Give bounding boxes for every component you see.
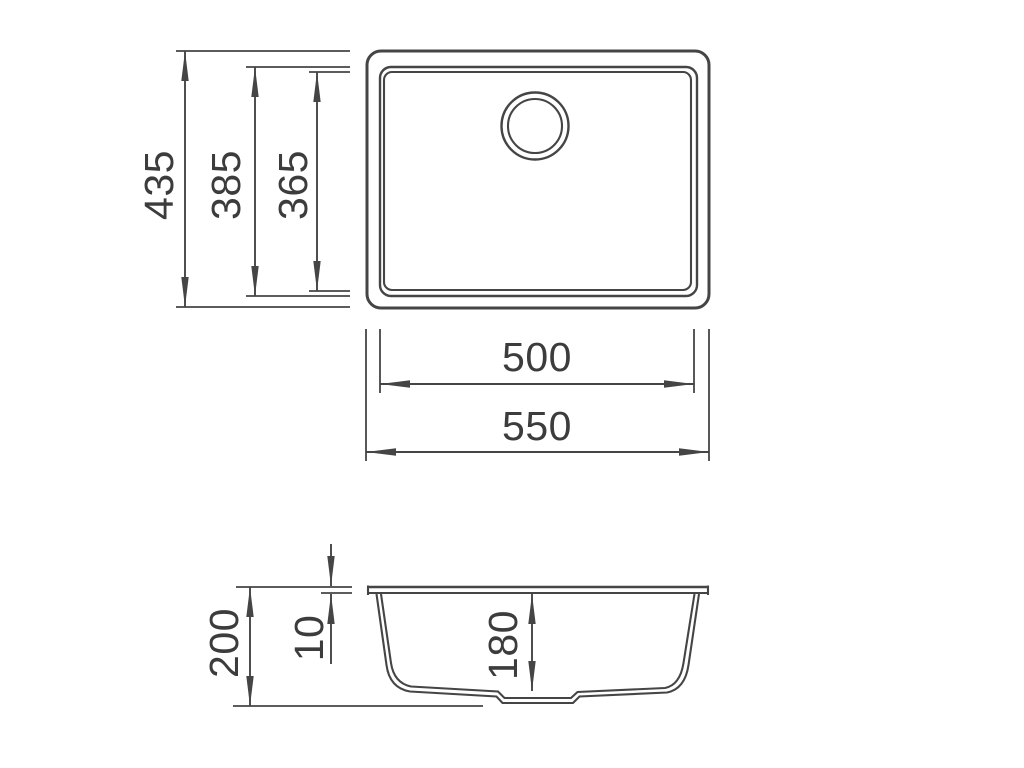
dim-bowl-height: 180: [480, 594, 532, 691]
technical-drawing-page: 435 385 365 500 550: [0, 0, 1024, 768]
drain-inner-circle: [508, 99, 562, 153]
sink-rim-outline: [367, 51, 709, 308]
drain-outer-circle: [502, 93, 569, 160]
sink-section-view: [368, 586, 708, 704]
dim-label-bowl-height: 180: [480, 610, 526, 680]
sink-top-view: [367, 51, 709, 308]
bowl-bottom-edge-outline: [384, 72, 691, 290]
bowl-inner-surface-profile: [381, 594, 695, 698]
dim-label-rim-inner-depth: 385: [203, 150, 249, 220]
dim-label-bowl-depth: 365: [270, 150, 316, 220]
dim-label-overall-height: 200: [201, 608, 247, 678]
dim-label-overall-depth: 435: [136, 150, 182, 220]
dim-label-rim-height: 10: [286, 615, 332, 662]
dim-label-overall-width: 550: [502, 403, 572, 449]
sink-dimension-drawing: 435 385 365 500 550: [0, 0, 1024, 768]
dim-bowl-width: 500: [380, 329, 694, 393]
dim-label-bowl-width: 500: [502, 334, 572, 380]
bowl-top-edge-outline: [380, 67, 697, 296]
dim-bowl-depth: 365: [270, 72, 350, 291]
dim-rim-height: 10: [286, 544, 352, 664]
